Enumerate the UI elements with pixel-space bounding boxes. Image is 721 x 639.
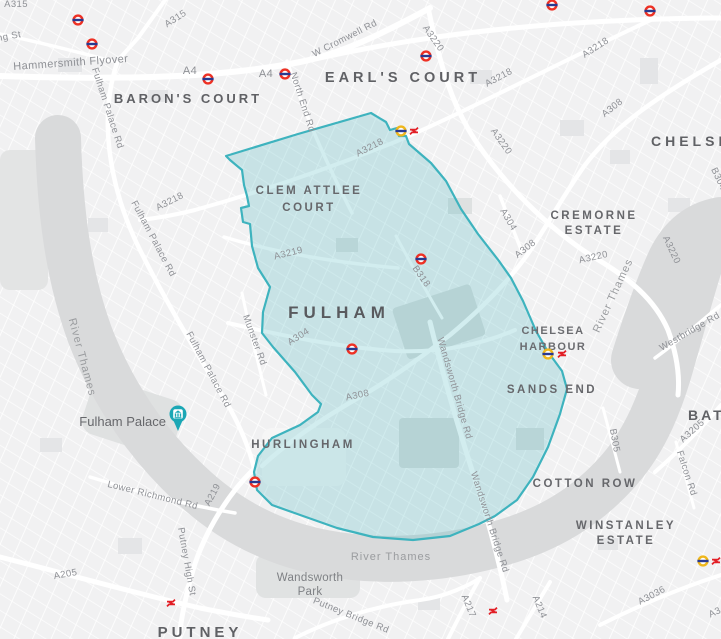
- district-label-winstanley-line1: WINSTANLEY: [576, 520, 676, 532]
- district-label-clem-attlee-line2: COURT: [282, 202, 335, 214]
- interchange-roundel-icon[interactable]: [697, 557, 708, 566]
- underground-roundel-icon[interactable]: [72, 16, 83, 25]
- district-label-chelsea-harbour-line2: HARBOUR: [520, 341, 587, 353]
- district-label-battersea: BATTERSEA: [688, 407, 721, 423]
- district-label-putney: PUTNEY: [158, 624, 243, 639]
- river-label-south: River Thames: [351, 551, 431, 563]
- underground-roundel-icon[interactable]: [86, 40, 97, 49]
- road-label-a4-east: A4: [259, 68, 273, 80]
- underground-roundel-icon[interactable]: [644, 7, 655, 16]
- underground-roundel-icon[interactable]: [415, 255, 426, 264]
- interchange-roundel-icon[interactable]: [542, 350, 553, 359]
- underground-roundel-icon[interactable]: [249, 478, 260, 487]
- district-label-barons-court: BARON'S COURT: [114, 91, 262, 106]
- district-label-hurlingham: HURLINGHAM: [251, 439, 355, 451]
- underground-roundel-icon[interactable]: [279, 70, 290, 79]
- district-label-cremorne-line1: CREMORNE: [550, 210, 637, 222]
- district-label-fulham: FULHAM: [288, 303, 390, 322]
- map-svg[interactable]: BARON'S COURT EARL'S COURT CHELSEA CLEM …: [0, 0, 721, 639]
- underground-roundel-icon[interactable]: [546, 1, 557, 10]
- district-label-cremorne-line2: ESTATE: [565, 225, 624, 237]
- underground-roundel-icon[interactable]: [346, 345, 357, 354]
- district-label-winstanley-line2: ESTATE: [597, 535, 656, 547]
- underground-roundel-icon[interactable]: [202, 75, 213, 84]
- district-label-clem-attlee-line1: CLEM ATTLEE: [256, 185, 363, 197]
- park-label-wandsworth-park-line1: Wandsworth: [277, 572, 344, 584]
- district-label-sands-end: SANDS END: [507, 384, 597, 396]
- fulham-palace-label: Fulham Palace: [79, 414, 166, 429]
- district-label-chelsea: CHELSEA: [651, 133, 721, 149]
- road-label-a315-top: A315: [4, 0, 28, 10]
- district-label-earls-court: EARL'S COURT: [325, 70, 481, 86]
- map-canvas[interactable]: BARON'S COURT EARL'S COURT CHELSEA CLEM …: [0, 0, 721, 639]
- interchange-roundel-icon[interactable]: [395, 127, 406, 136]
- district-label-cotton-row: COTTON ROW: [533, 478, 638, 490]
- underground-roundel-icon[interactable]: [420, 52, 431, 61]
- district-label-chelsea-harbour-line1: CHELSEA: [521, 325, 584, 337]
- road-label-a4-west: A4: [183, 65, 197, 77]
